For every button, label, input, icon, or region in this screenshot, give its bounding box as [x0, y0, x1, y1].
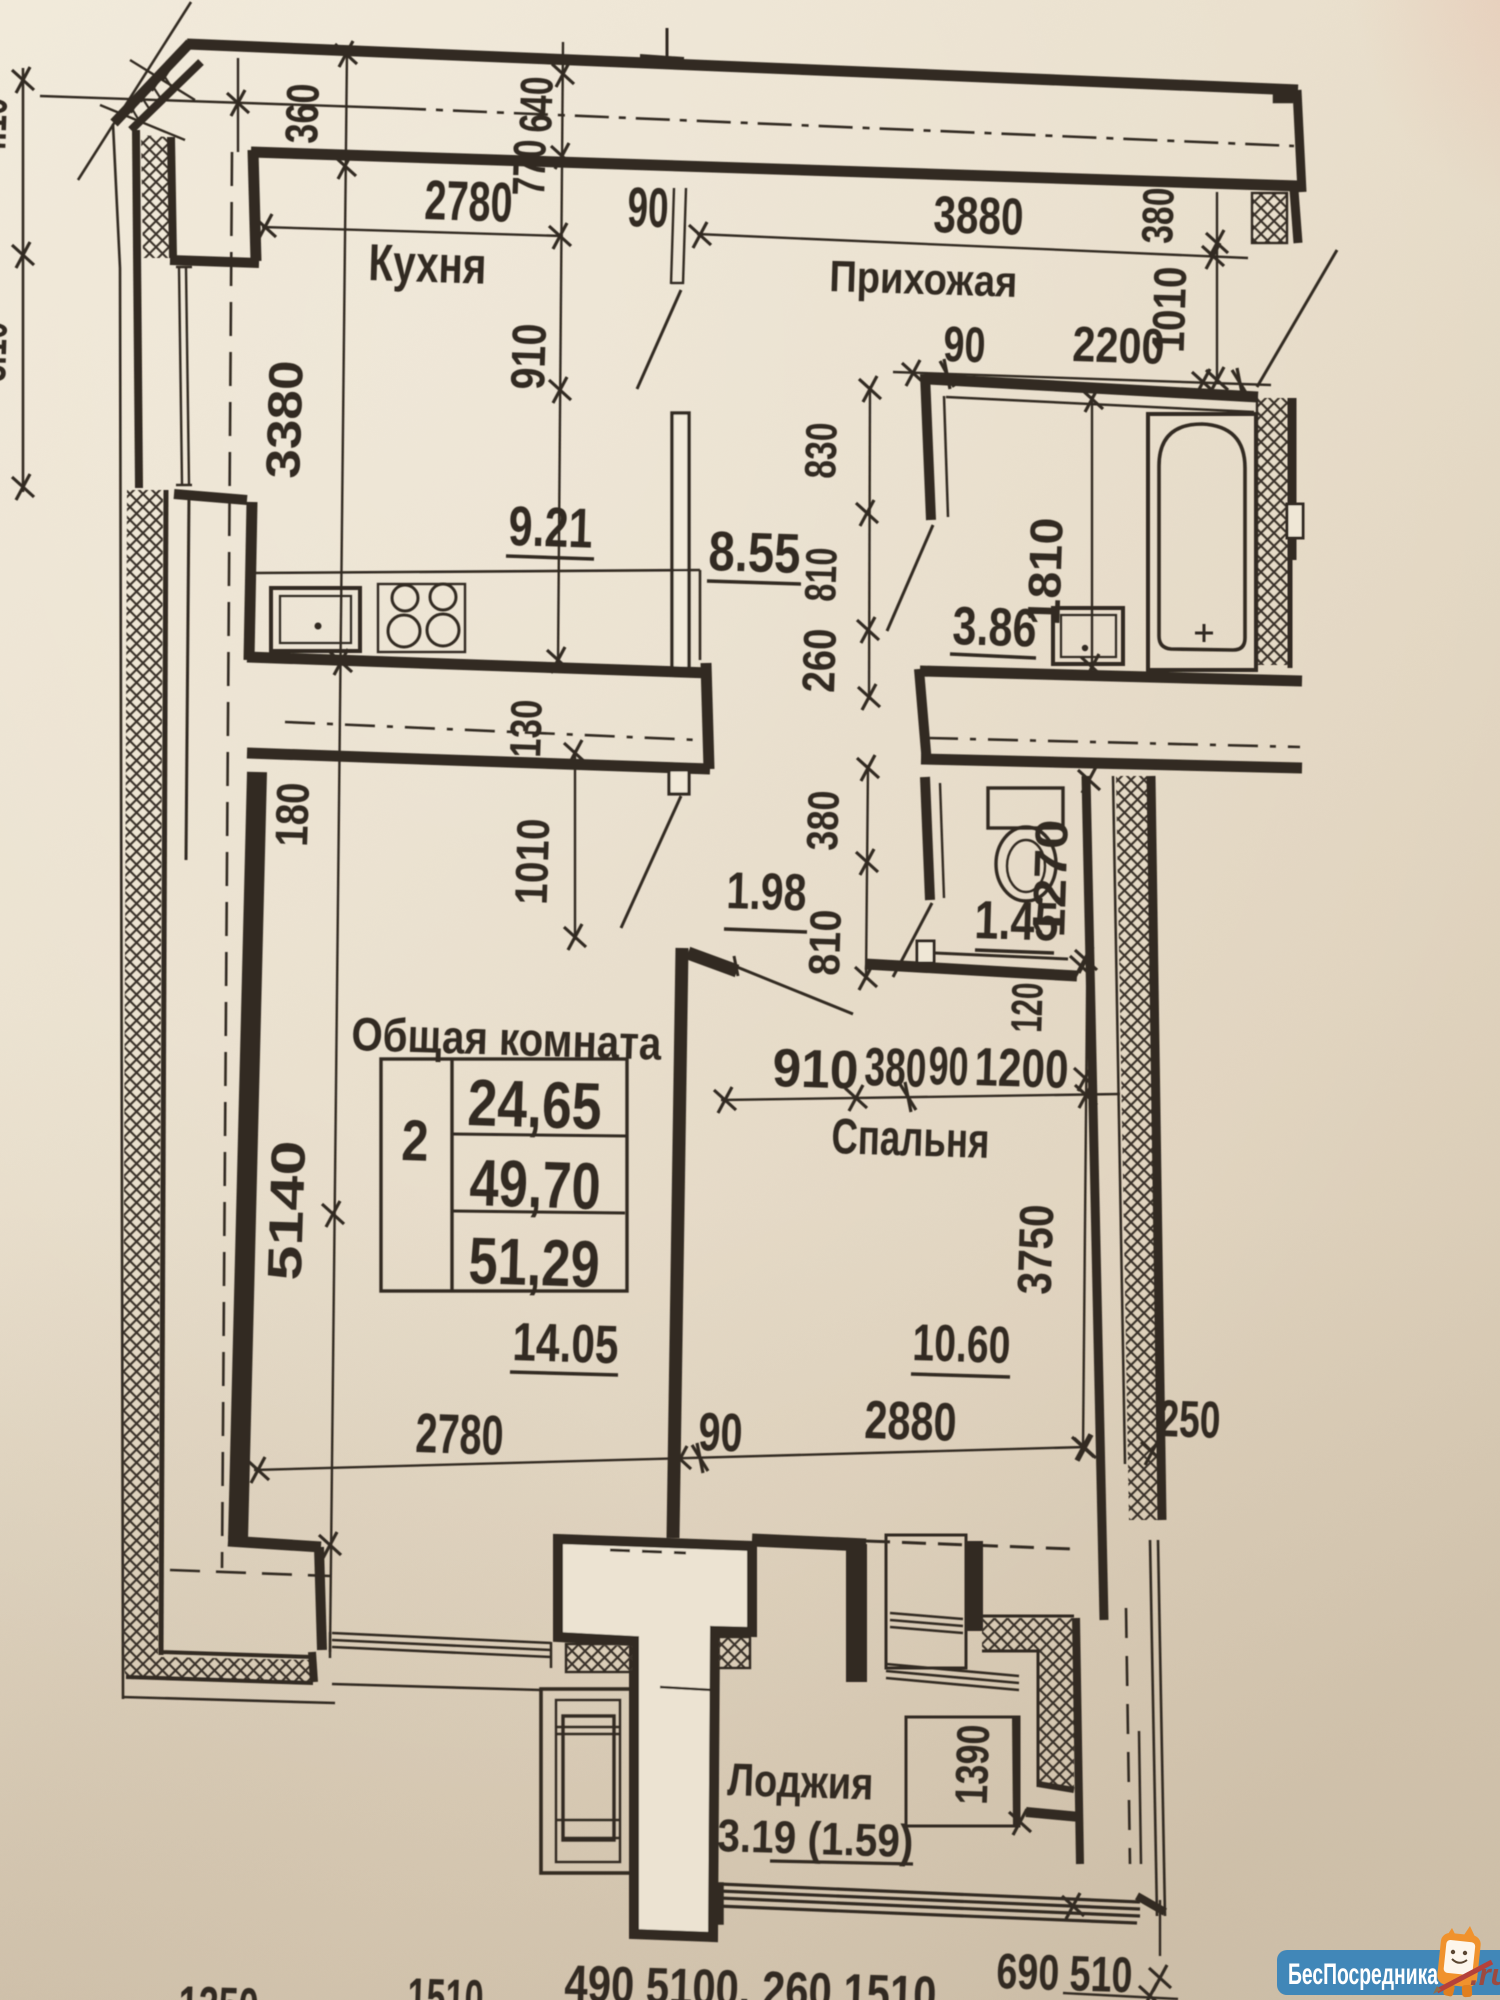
svg-text:Лоджия: Лоджия [727, 1753, 875, 1810]
svg-text:1390: 1390 [945, 1724, 999, 1806]
svg-text:250: 250 [1158, 1390, 1222, 1450]
svg-text:90: 90 [928, 1036, 970, 1097]
svg-text:3880: 3880 [933, 186, 1025, 247]
svg-text:8.55: 8.55 [708, 519, 802, 585]
svg-text:3.10: 3.10 [0, 321, 17, 383]
svg-text:3.19 (1.59): 3.19 (1.59) [717, 1809, 915, 1867]
svg-text:49,70: 49,70 [469, 1145, 602, 1223]
svg-text:90: 90 [698, 1402, 744, 1463]
svg-text:1010: 1010 [1142, 266, 1197, 354]
svg-text:690 510: 690 510 [996, 1943, 1134, 2000]
svg-text:10.60: 10.60 [912, 1314, 1012, 1375]
svg-text:1270: 1270 [1022, 819, 1078, 939]
svg-text:1200: 1200 [974, 1037, 1070, 1100]
svg-text:90: 90 [627, 175, 670, 239]
svg-text:1810: 1810 [1017, 517, 1072, 627]
svg-text:3750: 3750 [1009, 1204, 1065, 1296]
svg-text:Прихожая: Прихожая [829, 252, 1018, 307]
svg-text:360: 360 [275, 83, 329, 145]
svg-text:380: 380 [798, 790, 849, 852]
svg-text:Спальня: Спальня [831, 1108, 991, 1169]
svg-text:1250: 1250 [178, 1976, 260, 2000]
svg-text:24,65: 24,65 [467, 1065, 603, 1143]
svg-text:2: 2 [401, 1108, 430, 1174]
svg-text:380: 380 [1133, 187, 1184, 245]
svg-text:2880: 2880 [864, 1390, 958, 1453]
svg-text:770: 770 [502, 139, 556, 197]
svg-text:3380: 3380 [257, 360, 314, 480]
svg-text:Кухня: Кухня [368, 234, 488, 296]
svg-text:1.98: 1.98 [726, 862, 808, 922]
svg-text:120: 120 [1002, 982, 1053, 1034]
svg-text:380: 380 [864, 1037, 928, 1099]
svg-text:51,29: 51,29 [468, 1223, 601, 1301]
svg-text:180: 180 [265, 782, 319, 848]
svg-text:910: 910 [502, 323, 557, 391]
svg-text:1010: 1010 [505, 818, 560, 906]
svg-text:810: 810 [796, 547, 847, 603]
svg-text:1510: 1510 [407, 1968, 485, 2000]
svg-text:4.10: 4.10 [0, 97, 17, 159]
svg-text:130: 130 [501, 699, 552, 759]
svg-text:БесПосредника: БесПосредника [1288, 1958, 1438, 1991]
svg-text:2780: 2780 [415, 1401, 505, 1467]
svg-text:9.21: 9.21 [508, 494, 594, 560]
svg-text:640: 640 [509, 76, 563, 134]
svg-text:14.05: 14.05 [512, 1312, 620, 1375]
svg-text:5140: 5140 [259, 1140, 316, 1282]
svg-text:910: 910 [772, 1038, 860, 1101]
svg-text:.ru: .ru [1470, 1957, 1500, 1992]
svg-text:830: 830 [796, 422, 847, 480]
svg-text:260: 260 [792, 628, 846, 694]
svg-text:90: 90 [943, 316, 987, 373]
svg-text:810: 810 [800, 909, 851, 977]
svg-text:2780: 2780 [424, 168, 514, 234]
